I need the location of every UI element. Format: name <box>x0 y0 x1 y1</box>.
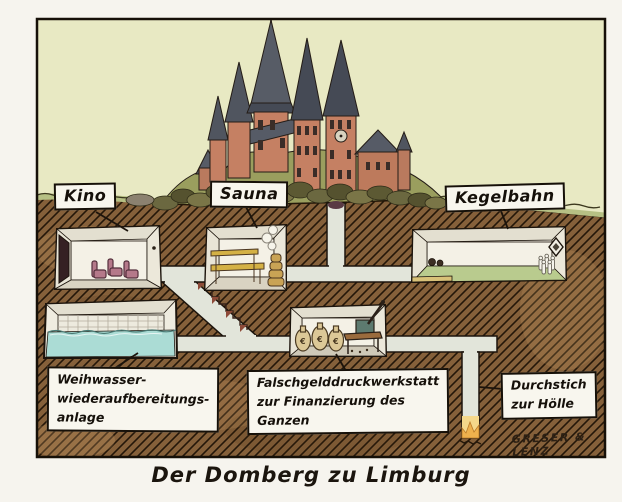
kino-room <box>55 226 161 289</box>
label-kegelbahn: Kegelbahn <box>445 182 565 213</box>
weihwasser-pool-room <box>44 300 177 358</box>
holy-water <box>46 330 175 357</box>
cinema-screen <box>59 235 69 283</box>
label-kegelbahn-text: Kegelbahn <box>455 187 555 208</box>
cartoon-panel: € € € <box>0 0 622 502</box>
svg-text:€: € <box>299 337 306 346</box>
shaft-opening <box>328 201 344 209</box>
artist-signature: GRESER & LENZ <box>512 429 622 459</box>
label-falschgeld: Falschgelddruckwerkstatt zur Finanzierun… <box>247 368 450 435</box>
falschgeld-workshop-room: € € € <box>290 300 386 356</box>
svg-text:€: € <box>332 337 339 346</box>
bowling-ball <box>429 259 436 266</box>
bowling-ball <box>437 260 443 266</box>
door-knob <box>152 246 156 250</box>
kegelbahn-room <box>412 227 566 282</box>
label-sauna: Sauna <box>210 181 289 209</box>
label-kino: Kino <box>54 182 117 210</box>
label-weihwasser: Weihwasser- wiederaufbereitungs- anlage <box>47 366 220 432</box>
label-hoelle: Durchstich zur Hölle <box>501 371 598 419</box>
sauna-surface-shaft <box>327 203 345 269</box>
svg-text:€: € <box>316 335 323 344</box>
cartoon-caption: Der Domberg zu Limburg <box>0 463 622 487</box>
label-kino-text: Kino <box>64 187 107 206</box>
label-sauna-text: Sauna <box>220 185 279 204</box>
sauna-room <box>205 225 286 290</box>
